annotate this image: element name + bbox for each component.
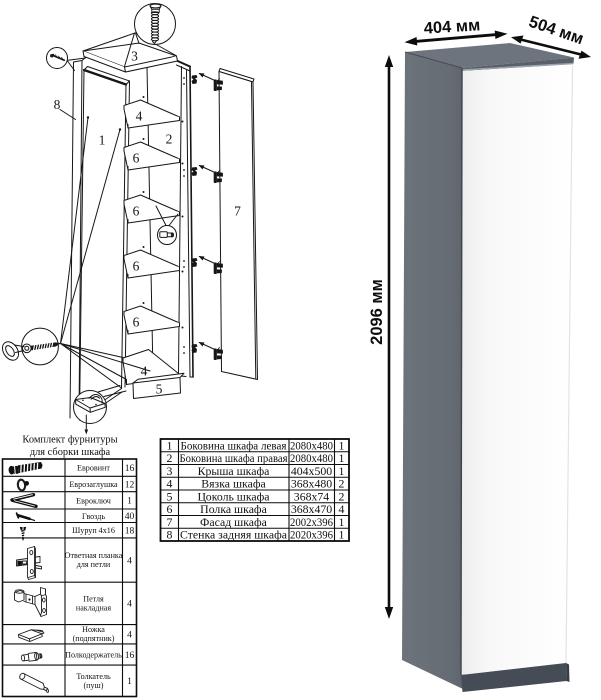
svg-text:1: 1 <box>127 676 132 687</box>
svg-text:2020х396: 2020х396 <box>290 528 333 542</box>
svg-text:Полкодержатель: Полкодержатель <box>65 651 122 660</box>
svg-text:4: 4 <box>141 364 148 379</box>
svg-text:Стенка задняя шкафа: Стенка задняя шкафа <box>180 528 288 542</box>
svg-text:4: 4 <box>127 630 132 641</box>
svg-text:12: 12 <box>125 479 135 490</box>
svg-text:7: 7 <box>234 204 241 219</box>
svg-text:18: 18 <box>125 526 135 537</box>
svg-text:для сборки шкафа: для сборки шкафа <box>30 447 111 458</box>
svg-text:5: 5 <box>156 382 163 397</box>
svg-text:40: 40 <box>125 511 135 522</box>
svg-text:Комплект фурнитуры: Комплект фурнитуры <box>22 435 117 446</box>
svg-text:4: 4 <box>136 109 143 124</box>
svg-text:(подпятник): (подпятник) <box>73 634 115 643</box>
svg-text:8: 8 <box>54 97 61 112</box>
svg-text:для петли: для петли <box>77 560 111 569</box>
svg-text:8: 8 <box>167 528 173 542</box>
svg-text:Ножка: Ножка <box>82 625 105 634</box>
svg-text:6: 6 <box>133 259 140 274</box>
svg-text:накладная: накладная <box>76 603 112 612</box>
svg-text:2: 2 <box>166 132 173 147</box>
svg-text:Гвоздь: Гвоздь <box>82 512 105 521</box>
svg-text:16: 16 <box>125 650 135 661</box>
svg-text:6: 6 <box>133 204 140 219</box>
svg-text:6: 6 <box>133 151 140 166</box>
svg-text:Ответная планка: Ответная планка <box>65 551 123 560</box>
svg-text:Петля: Петля <box>83 594 104 603</box>
svg-text:1: 1 <box>127 496 132 507</box>
svg-text:4: 4 <box>127 555 132 566</box>
svg-text:1: 1 <box>339 528 345 542</box>
svg-text:404 мм: 404 мм <box>423 16 481 37</box>
svg-text:3: 3 <box>131 49 138 64</box>
svg-text:Шуруп 4х16: Шуруп 4х16 <box>72 526 115 535</box>
svg-text:16: 16 <box>125 463 135 474</box>
svg-text:Еврозаглушка: Еврозаглушка <box>69 480 118 489</box>
svg-text:4: 4 <box>127 599 132 610</box>
svg-text:6: 6 <box>133 315 140 330</box>
svg-text:2096 мм: 2096 мм <box>368 279 386 345</box>
svg-text:Евроключ: Евроключ <box>76 496 111 505</box>
svg-text:(пуш): (пуш) <box>83 681 103 690</box>
svg-text:1: 1 <box>99 133 106 148</box>
svg-text:Толкатель: Толкатель <box>76 672 111 681</box>
svg-text:Евровинт: Евровинт <box>77 464 110 473</box>
